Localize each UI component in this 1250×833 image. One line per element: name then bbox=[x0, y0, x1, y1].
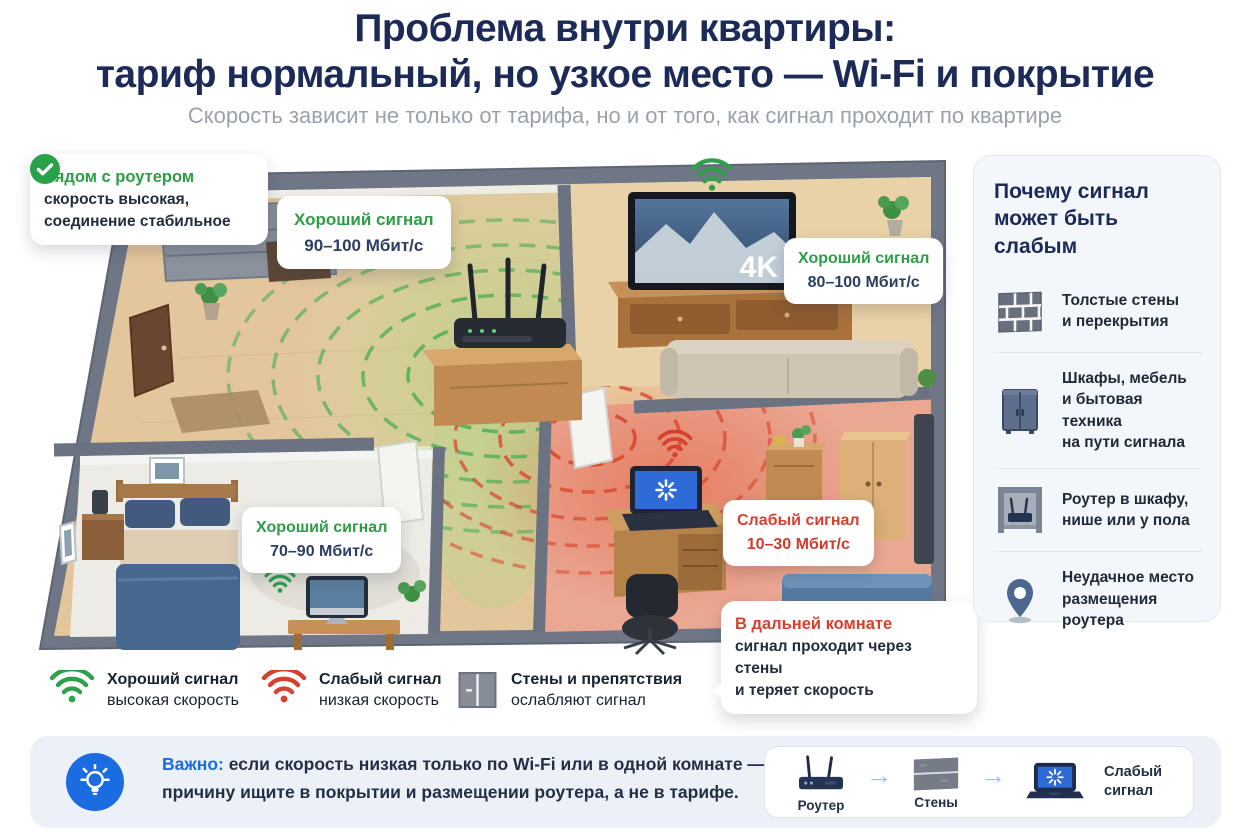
laptop-weak-icon bbox=[1026, 761, 1084, 803]
title-line-1: Проблема внутри квартиры: bbox=[354, 7, 895, 50]
location-pin-icon bbox=[994, 573, 1046, 625]
wifi-weak-icon bbox=[262, 670, 306, 706]
cabinet-icon bbox=[994, 385, 1046, 437]
header: Проблема внутри квартиры: тариф нормальн… bbox=[0, 6, 1250, 129]
callout-title: Рядом с роутером bbox=[44, 166, 231, 189]
arrow-right-icon: → bbox=[866, 760, 892, 791]
chain-walls: Стены bbox=[912, 755, 960, 810]
sidebar-item-bad-placement: Неудачное место размещения роутера bbox=[994, 551, 1202, 646]
legend-good-signal: Хороший сигнал высокая скорость bbox=[50, 670, 239, 712]
check-circle-icon bbox=[30, 154, 60, 184]
signal-label-10-30: Слабый сигнал 10–30 Мбит/с bbox=[723, 500, 874, 566]
sidebar-item-furniture: Шкафы, мебель и бытовая техника на пути … bbox=[994, 352, 1202, 469]
cause-chain-panel: Роутер → Стены → bbox=[764, 746, 1194, 818]
wall-icon bbox=[458, 670, 498, 710]
title-line-2: тариф нормальный, но узкое место — Wi-Fi… bbox=[96, 53, 1154, 96]
sidebar-item-router-hidden: Роутер в шкафу, нише или у пола bbox=[994, 468, 1202, 551]
callout-title: В дальней комнате bbox=[735, 613, 963, 636]
wifi-good-icon bbox=[50, 670, 94, 706]
note-text: Важно: если скорость низкая только по Wi… bbox=[162, 750, 765, 806]
important-note-bar: Важно: если скорость низкая только по Wi… bbox=[30, 736, 1221, 828]
page-title: Проблема внутри квартиры: тариф нормальн… bbox=[0, 6, 1250, 97]
lightbulb-icon bbox=[66, 753, 124, 811]
router-callout: Рядом с роутеромскорость высокая, соедин… bbox=[30, 154, 268, 245]
arrow-right-icon: → bbox=[980, 760, 1006, 791]
sidebar-title: Почему сигнал может быть слабым bbox=[994, 178, 1202, 260]
router-icon bbox=[796, 752, 846, 796]
signal-label-80-100: Хороший сигнал 80–100 Мбит/с bbox=[784, 238, 943, 304]
tv-4k: 4K bbox=[628, 192, 796, 290]
note-label: Важно: bbox=[162, 754, 224, 774]
couch bbox=[660, 340, 918, 398]
curtain bbox=[914, 414, 934, 564]
callout-body: скорость высокая, соединение стабильное bbox=[44, 191, 231, 230]
floorplan: 4K bbox=[30, 148, 960, 663]
page-subtitle: Скорость зависит не только от тарифа, но… bbox=[0, 103, 1250, 129]
legend-weak-signal: Слабый сигнал низкая скорость bbox=[262, 670, 442, 712]
why-weak-sidebar: Почему сигнал может быть слабым Толстые … bbox=[973, 155, 1221, 622]
infographic-page: Проблема внутри квартиры: тариф нормальн… bbox=[0, 0, 1250, 833]
chain-result-label: Слабый сигнал bbox=[1104, 763, 1162, 801]
legend: Хороший сигнал высокая скорость Слабый с… bbox=[30, 666, 960, 728]
sidebar-item-thick-walls: Толстые стены и перекрытия bbox=[994, 270, 1202, 352]
brick-wall-icon bbox=[994, 285, 1046, 337]
router-in-niche-icon bbox=[994, 484, 1046, 536]
legend-walls: Стены и препятствия ослабляют сигнал bbox=[458, 670, 682, 712]
wall-icon bbox=[912, 755, 960, 793]
signal-label-90-100: Хороший сигнал 90–100 Мбит/с bbox=[277, 196, 451, 269]
entry-door bbox=[130, 305, 173, 396]
chain-router: Роутер bbox=[796, 752, 846, 813]
signal-label-70-90: Хороший сигнал 70–90 Мбит/с bbox=[242, 507, 401, 573]
tv-4k-badge: 4K bbox=[740, 251, 779, 284]
